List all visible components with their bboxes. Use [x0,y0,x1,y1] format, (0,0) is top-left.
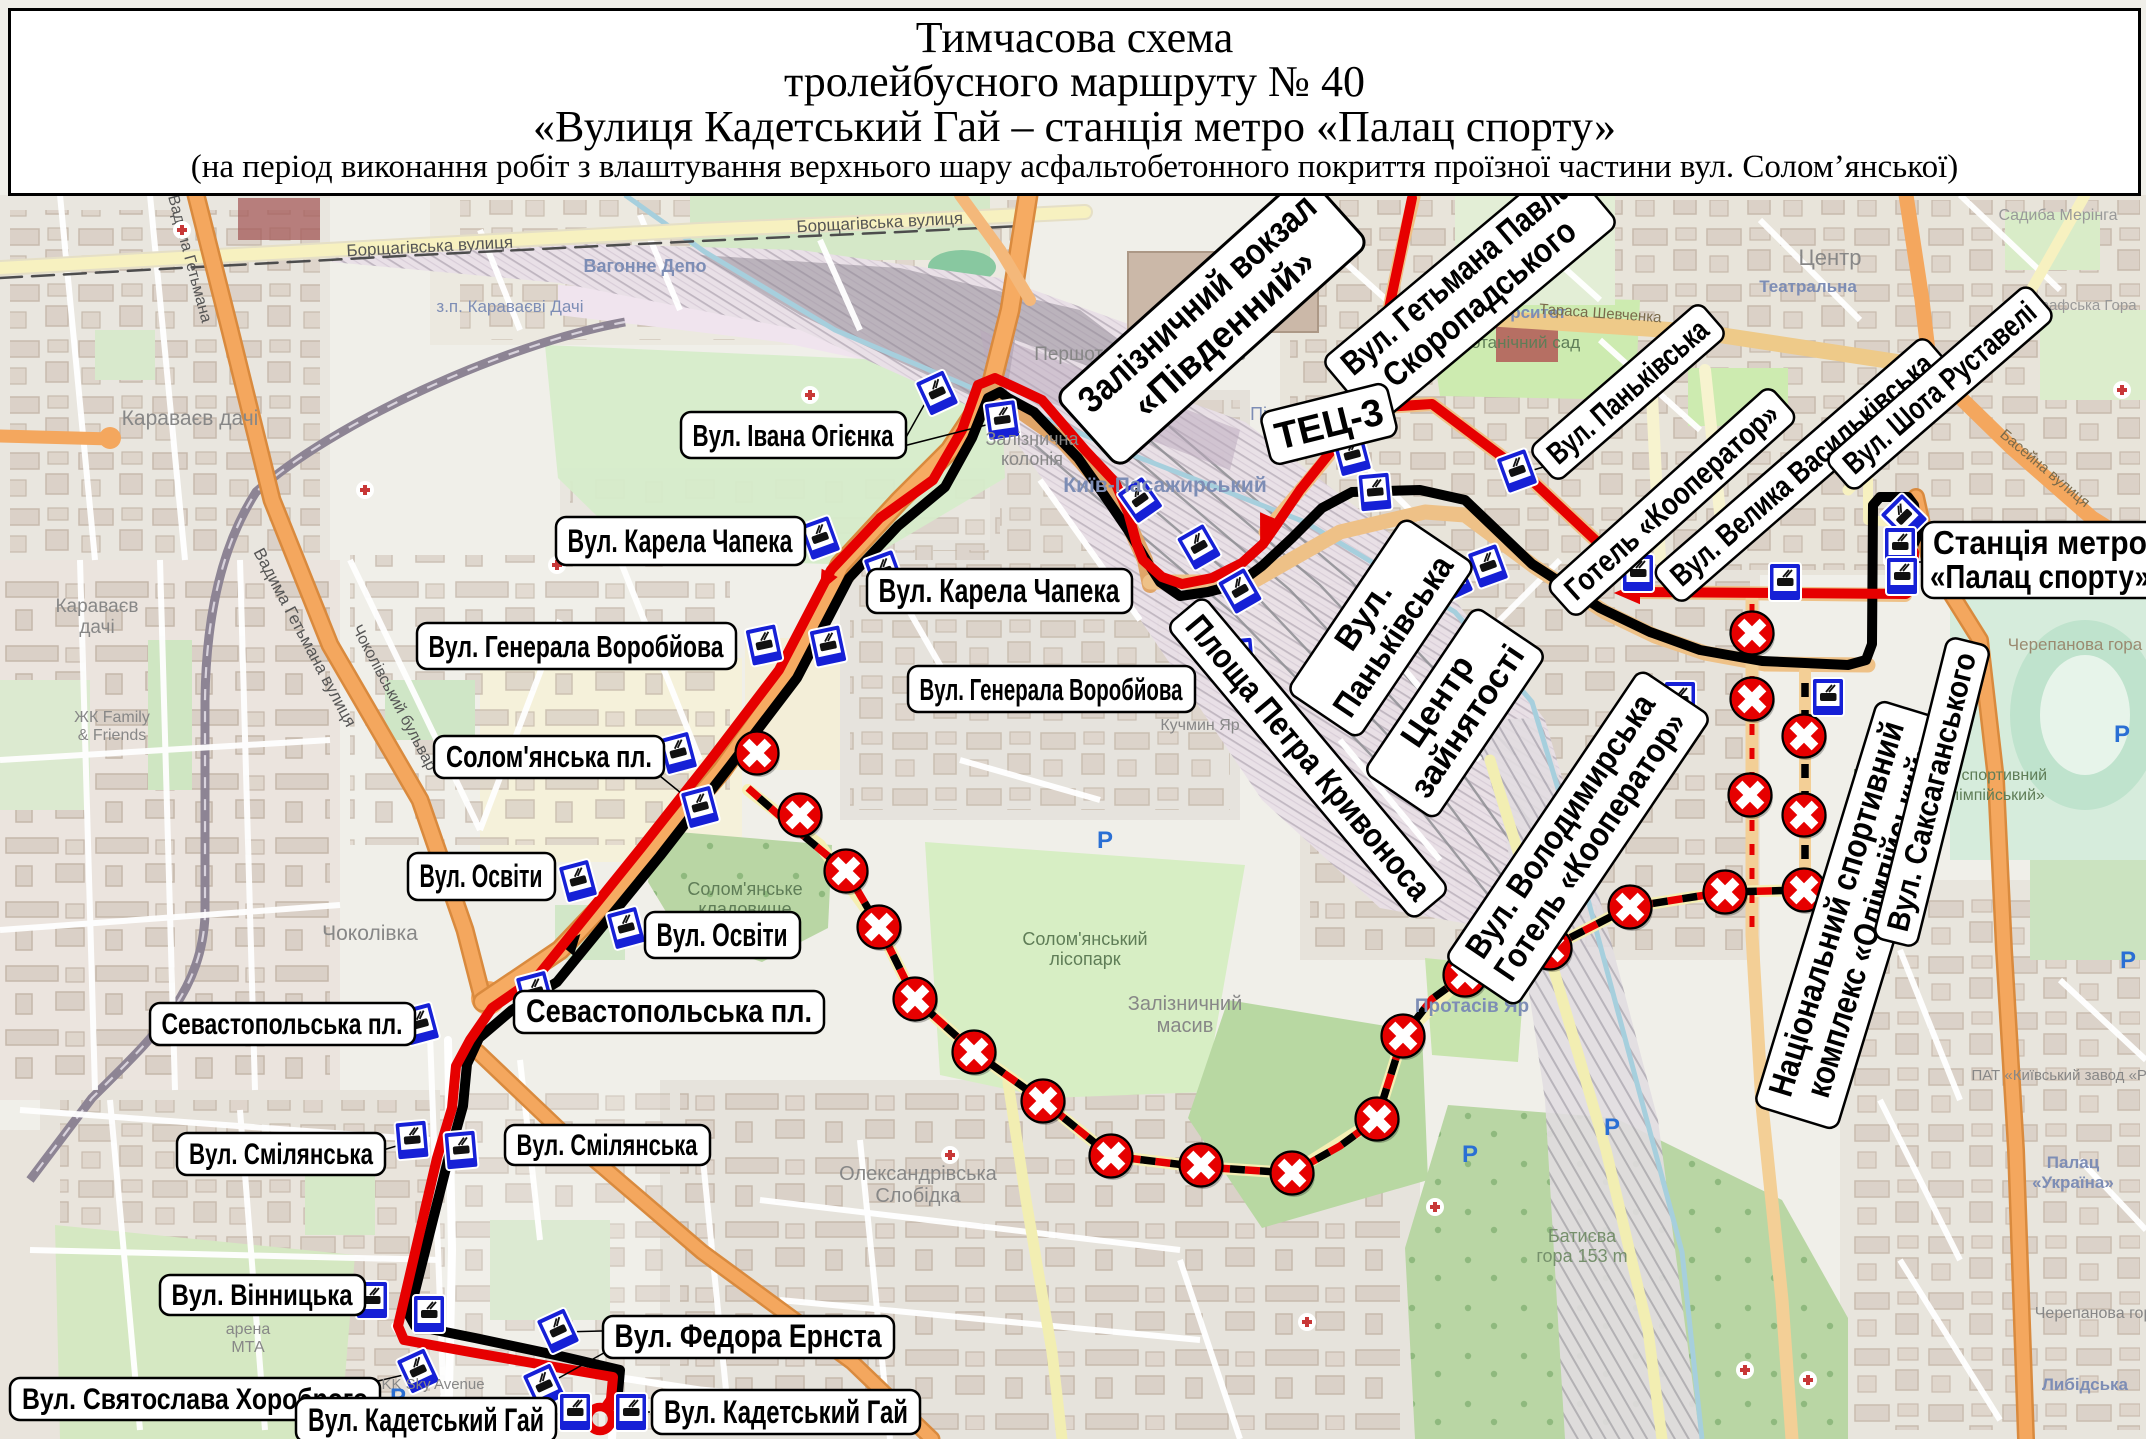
svg-text:Вагонне Депо: Вагонне Депо [584,256,707,276]
svg-text:Либідська: Либідська [2042,1375,2129,1394]
svg-text:ЖК Family: ЖК Family [74,709,150,726]
svg-text:P: P [2120,947,2136,974]
svg-text:дачі: дачі [79,617,114,638]
svg-text:масив: масив [1157,1015,1214,1037]
svg-text:Палац: Палац [2047,1153,2100,1172]
svg-text:Караваєв дачі: Караваєв дачі [122,407,259,430]
svg-text:МТА: МТА [231,1339,265,1356]
svg-text:Вул. Смілянська: Вул. Смілянська [189,1138,373,1171]
svg-text:Вул. Кадетський Гай: Вул. Кадетський Гай [664,1394,908,1430]
svg-text:Вул. Івана Огієнка: Вул. Івана Огієнка [693,418,895,453]
svg-text:лісопарк: лісопарк [1049,949,1120,969]
svg-text:Станція метро: Станція метро [1933,524,2146,561]
svg-text:Батиєва: Батиєва [1548,1226,1617,1246]
svg-text:Черепанова гора: Черепанова гора [2035,1305,2146,1322]
svg-text:Київ-Пасажирський: Київ-Пасажирський [1063,474,1266,497]
svg-text:Вул. Карела Чапека: Вул. Карела Чапека [879,572,1120,609]
svg-text:ПАТ «Київський завод «Радар»: ПАТ «Київський завод «Радар» [1971,1067,2146,1084]
svg-text:Садиба Мерінга: Садиба Мерінга [1998,207,2117,224]
svg-text:Центр: Центр [1799,245,1862,270]
svg-text:Слобідка: Слобідка [875,1185,961,1207]
svg-text:з.п. Караваєві Дачі: з.п. Караваєві Дачі [436,297,583,316]
svg-text:Вул. Освіти: Вул. Освіти [420,858,543,894]
svg-text:Черепанова гора: Черепанова гора [2008,635,2143,654]
svg-text:Чоколівка: Чоколівка [322,922,418,945]
svg-text:P: P [1604,1114,1620,1141]
svg-text:P: P [1097,827,1113,854]
svg-text:арена: арена [226,1321,271,1338]
svg-text:Вул. Генерала Воробйова: Вул. Генерала Воробйова [429,629,725,664]
svg-text:P: P [2114,721,2130,748]
svg-text:Караваєв: Караваєв [55,596,138,617]
svg-text:Севастопольська пл.: Севастопольська пл. [526,993,812,1029]
svg-text:Солом'янська пл.: Солом'янська пл. [446,739,652,774]
svg-text:колонія: колонія [1001,449,1063,469]
svg-text:гора 153 m: гора 153 m [1536,1246,1627,1266]
svg-text:Залізнична: Залізнична [986,429,1080,449]
svg-text:Вул. Генерала Воробйова: Вул. Генерала Воробйова [920,672,1183,707]
svg-text:Вул. Карела Чапека: Вул. Карела Чапека [568,523,793,559]
svg-text:Залізничний: Залізничний [1128,993,1243,1015]
svg-text:«Україна»: «Україна» [2032,1173,2114,1192]
svg-text:Вул. Смілянська: Вул. Смілянська [517,1129,698,1162]
svg-text:Вул. Вінницька: Вул. Вінницька [172,1279,353,1312]
svg-text:«Палац спорту»: «Палац спорту» [1930,558,2146,595]
svg-text:Вул. Освіти: Вул. Освіти [657,917,788,953]
svg-text:& Friends: & Friends [78,727,146,744]
svg-text:Кучмин Яр: Кучмин Яр [1160,717,1239,734]
svg-text:Севастопольська пл.: Севастопольська пл. [162,1008,403,1041]
svg-text:Вул. Федора Ернста: Вул. Федора Ернста [615,1318,882,1354]
svg-text:Олександрівська: Олександрівська [839,1163,998,1185]
svg-text:Солом'янський: Солом'янський [1022,929,1147,949]
svg-text:Солом'янське: Солом'янське [687,879,802,899]
svg-text:Вул. Кадетський Гай: Вул. Кадетський Гай [308,1402,544,1438]
svg-text:Театральна: Театральна [1759,277,1857,296]
svg-text:P: P [1462,1141,1478,1168]
